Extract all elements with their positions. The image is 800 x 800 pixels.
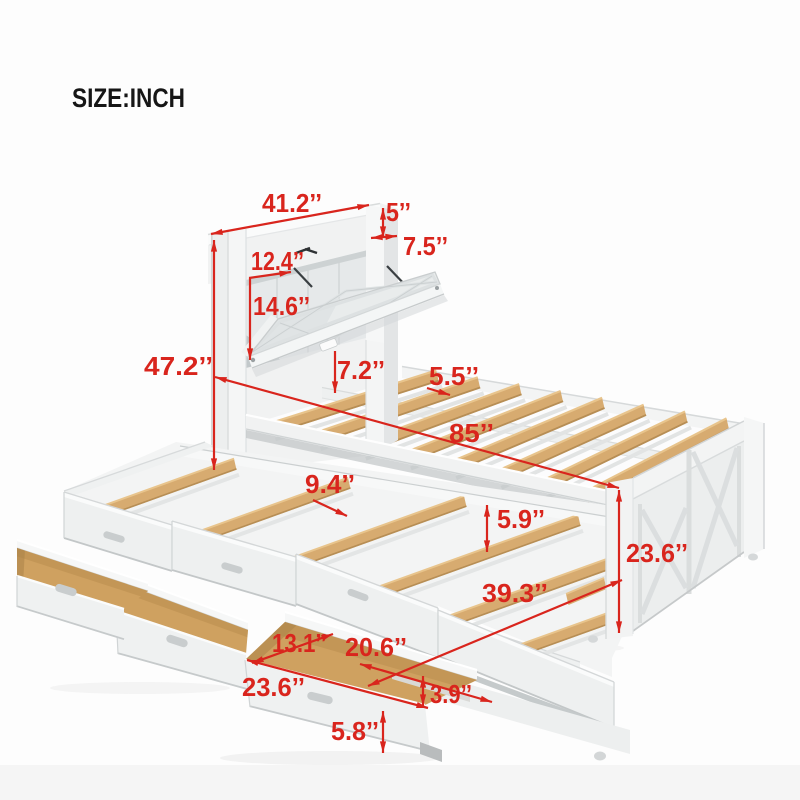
svg-text:85’’: 85’’ (449, 418, 494, 448)
svg-text:5’’: 5’’ (386, 197, 411, 227)
svg-text:5.8’’: 5.8’’ (331, 716, 379, 746)
svg-text:39.3’’: 39.3’’ (482, 578, 548, 608)
svg-text:7.2’’: 7.2’’ (337, 355, 385, 385)
svg-text:12.4’’: 12.4’’ (251, 246, 304, 276)
svg-text:7.5’’: 7.5’’ (403, 231, 448, 261)
svg-text:41.2’’: 41.2’’ (262, 188, 322, 218)
svg-text:23.6’’: 23.6’’ (626, 538, 688, 568)
svg-text:23.6’’: 23.6’’ (242, 672, 305, 702)
svg-text:5.5’’: 5.5’’ (429, 361, 479, 391)
svg-text:20.6’’: 20.6’’ (345, 632, 407, 662)
svg-text:SIZE:INCH: SIZE:INCH (72, 83, 185, 113)
svg-text:47.2’’: 47.2’’ (144, 351, 213, 381)
svg-text:14.6’’: 14.6’’ (253, 291, 310, 321)
svg-text:5.9’’: 5.9’’ (497, 504, 545, 534)
svg-text:13.1’’: 13.1’’ (272, 628, 327, 658)
svg-text:9.4’’: 9.4’’ (305, 469, 355, 499)
svg-text:3.9’’: 3.9’’ (430, 679, 472, 709)
